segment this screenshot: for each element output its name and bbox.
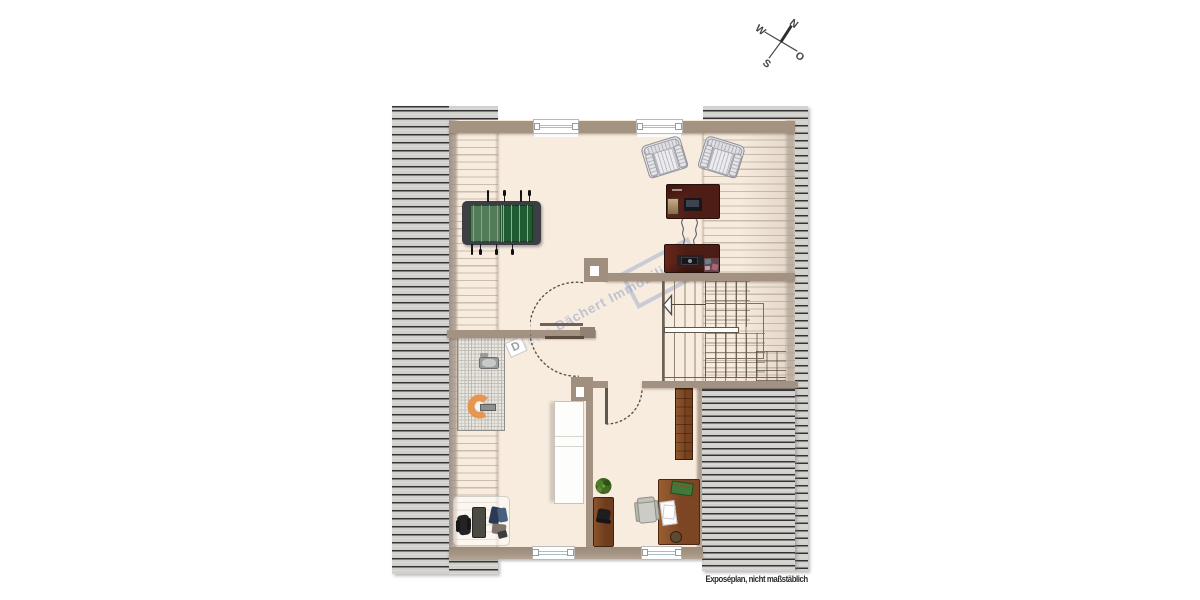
svg-text:O: O <box>793 49 807 63</box>
svg-text:W: W <box>753 22 768 38</box>
svg-text:S: S <box>760 57 773 71</box>
